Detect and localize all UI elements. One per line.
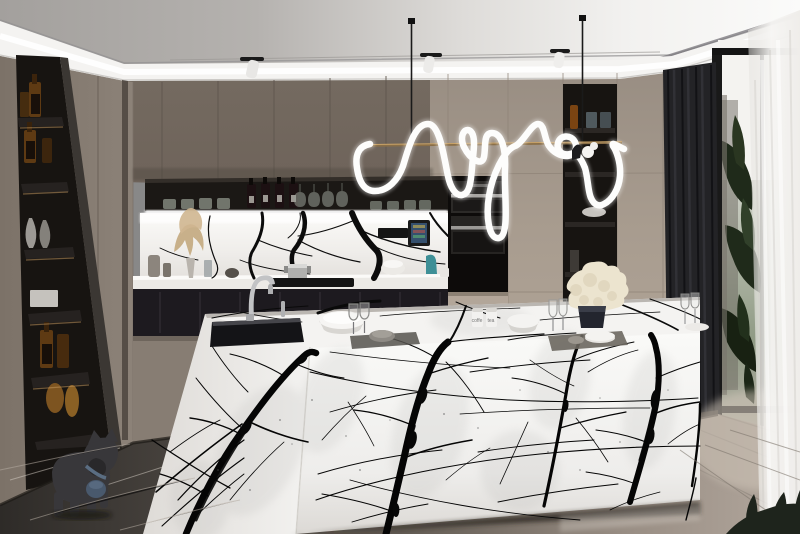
svg-text:tea: tea bbox=[488, 318, 495, 324]
svg-text:coffe: coffe bbox=[472, 318, 483, 324]
